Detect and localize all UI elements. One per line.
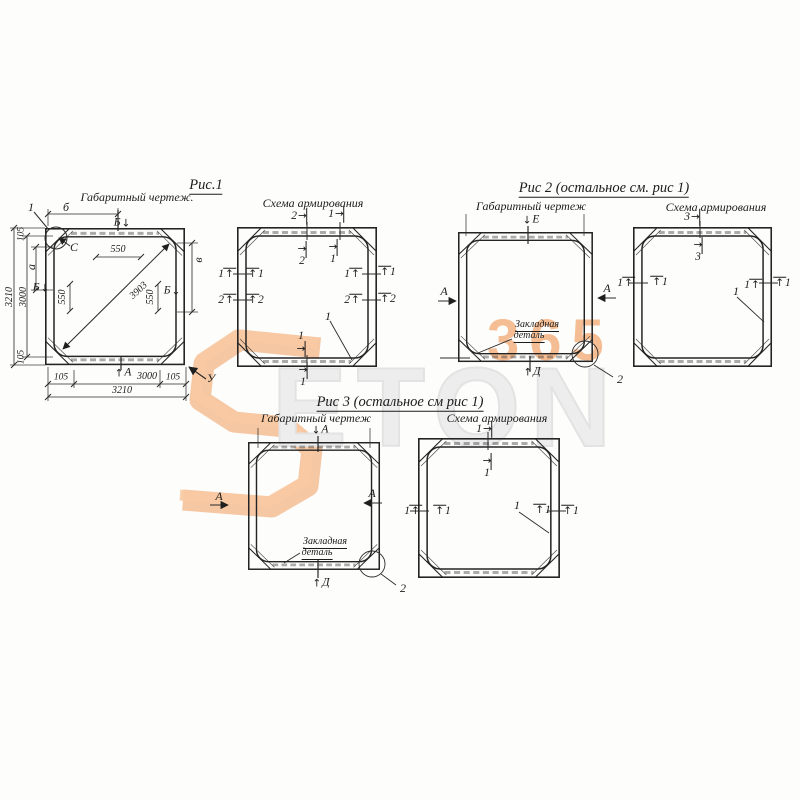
section-arrow-icon: ↑	[435, 505, 444, 518]
section-arrow-icon: ↑	[535, 504, 544, 517]
section-arrow-icon: →	[298, 243, 307, 256]
fig1-dim-letter-b: б	[63, 201, 69, 213]
fig3-section-a-left: А	[215, 490, 222, 502]
section-arrow-icon: →	[299, 364, 308, 377]
fig2-gab-caption: Габаритный чертеж	[476, 200, 586, 212]
fig2-sec1-left-in: ↑1	[652, 276, 668, 289]
section-arrow-icon: ↑	[563, 505, 572, 518]
section-arrow-icon: →	[694, 239, 703, 252]
arrow-up-icon: ↑	[115, 368, 124, 379]
arrow-up-icon: ↑	[312, 578, 321, 589]
fig2-sec3-top-out: 3→	[684, 211, 700, 224]
section-arrow-icon: ↑	[624, 277, 633, 290]
fig1-section-b-top: Б↓	[114, 217, 131, 229]
section-arrow-icon: ↑	[411, 505, 420, 518]
fig1-bar1-leader-label: 1	[325, 310, 331, 322]
fig1-sec2-top-out: 2→	[291, 210, 307, 223]
section-arrow-icon: ↑	[652, 276, 661, 289]
fig1-title: Рис.1	[189, 178, 222, 195]
arrow-down-icon: ↓	[312, 425, 321, 436]
fig1-section-b-left: Б↓	[33, 282, 50, 294]
fig1-detail-mark: 1	[28, 201, 34, 213]
fig2-sec1-right-in: 1↑	[744, 279, 760, 292]
fig1-dim-letter-a: а	[25, 264, 37, 270]
fig2-detail-2: 2	[617, 373, 623, 385]
fig1-dim-3000-left: 3000	[19, 287, 29, 307]
drawing-sheet: ETON 365	[0, 0, 800, 800]
fig3-sec1-left-in: ↑1	[435, 505, 451, 518]
section-arrow-icon: ↑	[380, 266, 389, 279]
fig2-section-a-right: А	[603, 282, 610, 294]
fig3-sec1-right-out: ↑1	[563, 505, 579, 518]
fig1-section-b-right: Б↓	[164, 285, 181, 297]
fig1-dim-3000-bottom: 3000	[137, 372, 157, 382]
fig1-dim-550-right: 550	[146, 290, 156, 305]
fig1-sec1-left-in: ↑1	[248, 268, 264, 281]
fig1-sec2-left-out: 2↑	[218, 294, 234, 307]
fig1-corner-c: С	[70, 241, 78, 253]
fig1-sec1-left-out: 1↑	[218, 268, 234, 281]
fig1-section-a-bottom: ↑А	[115, 367, 132, 379]
section-arrow-icon: ↑	[380, 293, 389, 306]
fig3-section-a-right: А	[368, 487, 375, 499]
section-arrow-icon: →	[483, 423, 492, 436]
fig2-section-d-bottom: ↑Д	[523, 366, 540, 378]
fig1-dim-3210-bottom: 3210	[112, 386, 132, 396]
fig1-sec1-right-out: ↑1	[380, 266, 396, 279]
fig2-scheme-caption: Схема армирования	[666, 201, 767, 213]
fig2-section-e-top: ↓Е	[523, 214, 540, 226]
section-arrow-icon: ↑	[225, 294, 234, 307]
fig3-sec1-top-in: →1	[483, 455, 492, 479]
fig1-dim-550-left: 550	[58, 290, 68, 305]
fig1-sec2-top-in: →2	[298, 243, 307, 267]
section-arrow-icon: ↑	[751, 279, 760, 292]
fig3-gab-caption: Габаритный чертеж	[261, 412, 371, 424]
arrow-down-icon: ↓	[171, 286, 180, 297]
fig3-scheme-caption: Схема армирования	[447, 412, 548, 424]
fig1-sec1-bottom-in: 1→	[297, 331, 306, 355]
fig1-sec1-right-in: 1↑	[344, 268, 360, 281]
fig3-title: Рис 3 (остальное см рис 1)	[317, 395, 484, 412]
fig1-corner-u: У	[207, 372, 215, 384]
section-arrow-icon: ↑	[225, 268, 234, 281]
fig2-title: Рис 2 (остальное см. рис 1)	[519, 181, 689, 198]
fig1-sec2-right-out: ↑2	[380, 293, 396, 306]
section-arrow-icon: ↑	[351, 294, 360, 307]
section-arrow-icon: →	[329, 241, 338, 254]
fig2-sec1-left-out: 1↑	[617, 277, 633, 290]
arrow-up-icon: ↑	[523, 367, 532, 378]
fig2-embed-label-line2: деталь	[514, 331, 545, 343]
fig2-section-a-left: А	[440, 285, 447, 297]
fig3-section-d-bottom: ↑Д	[312, 577, 329, 589]
fig1-dim-105-br: 105	[166, 373, 180, 383]
section-arrow-icon: →	[335, 208, 344, 221]
fig1-sec1-bottom-out: →1	[299, 364, 308, 388]
fig2-sec3-top-in: →3	[694, 239, 703, 263]
section-arrow-icon: →	[483, 455, 492, 468]
fig3-sec1-top-out: 1→	[476, 423, 492, 436]
fig2-bar1-leader-label: 1	[733, 285, 739, 297]
fig1-dim-letter-v: в	[192, 257, 204, 262]
fig3-sec1-left-out: 1↑	[404, 505, 420, 518]
section-arrow-icon: →	[691, 211, 700, 224]
section-arrow-icon: ↑	[775, 277, 784, 290]
fig1-dim-550-top: 550	[111, 245, 126, 255]
section-arrow-icon: ↑	[248, 294, 257, 307]
arrow-down-icon: ↓	[523, 215, 532, 226]
section-arrow-icon: ↑	[351, 268, 360, 281]
fig2-sec1-right-out: ↑1	[775, 277, 791, 290]
section-arrow-icon: →	[297, 343, 306, 356]
fig3-detail-2: 2	[400, 582, 406, 594]
section-arrow-icon: ↑	[248, 268, 257, 281]
fig1-dim-105-left-top: 105	[17, 227, 27, 241]
fig1-dim-105-left-bottom: 105	[17, 350, 27, 364]
fig1-gab-caption: Габаритный чертеж.	[80, 191, 193, 203]
fig3-section-a-top: ↓А	[312, 424, 329, 436]
fig3-bar1-leader-label: 1	[514, 499, 520, 511]
fig1-sec2-right-in: 2↑	[344, 294, 360, 307]
labels-layer: Рис.1 Габаритный чертеж. Схема армирован…	[0, 0, 800, 800]
fig1-sec1-top-out: 1→	[328, 208, 344, 221]
arrow-down-icon: ↓	[121, 218, 130, 229]
fig1-scheme-caption: Схема армирования	[263, 197, 364, 209]
arrow-down-icon: ↓	[40, 283, 49, 294]
fig3-sec1-right-in: ↑1	[535, 504, 551, 517]
fig1-dim-3210-left: 3210	[5, 287, 15, 307]
fig1-dim-105-bl: 105	[54, 373, 68, 383]
section-arrow-icon: →	[298, 210, 307, 223]
fig1-sec2-left-in: ↑2	[248, 294, 264, 307]
fig1-sec1-top-in: →1	[329, 241, 338, 265]
fig3-embed-label-line2: деталь	[302, 548, 333, 560]
